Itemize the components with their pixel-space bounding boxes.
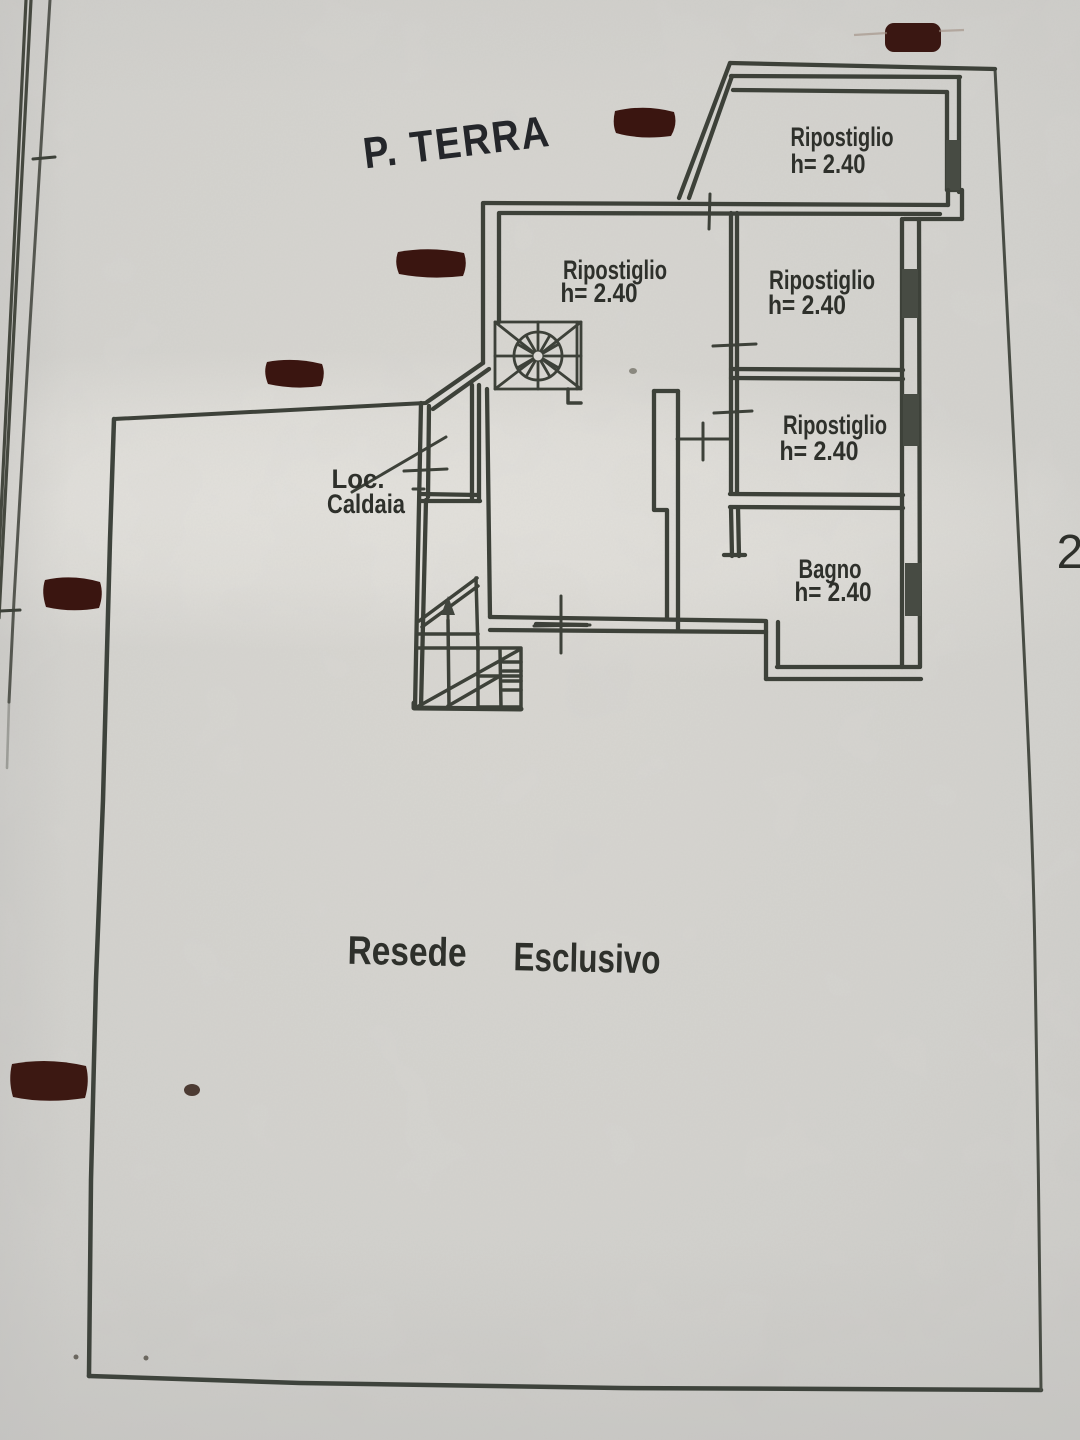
svg-text:Esclusivo: Esclusivo bbox=[513, 935, 661, 982]
svg-text:Ripostiglio: Ripostiglio bbox=[791, 122, 894, 152]
svg-text:h= 2.40: h= 2.40 bbox=[780, 436, 859, 466]
svg-text:Caldaia: Caldaia bbox=[327, 489, 406, 519]
svg-text:2: 2 bbox=[1057, 526, 1080, 579]
svg-text:h= 2.40: h= 2.40 bbox=[768, 290, 846, 320]
svg-text:h= 2.40: h= 2.40 bbox=[795, 577, 872, 607]
svg-text:h= 2.40: h= 2.40 bbox=[561, 278, 638, 308]
svg-text:Resede: Resede bbox=[347, 929, 467, 975]
svg-text:h= 2.40: h= 2.40 bbox=[791, 149, 866, 179]
